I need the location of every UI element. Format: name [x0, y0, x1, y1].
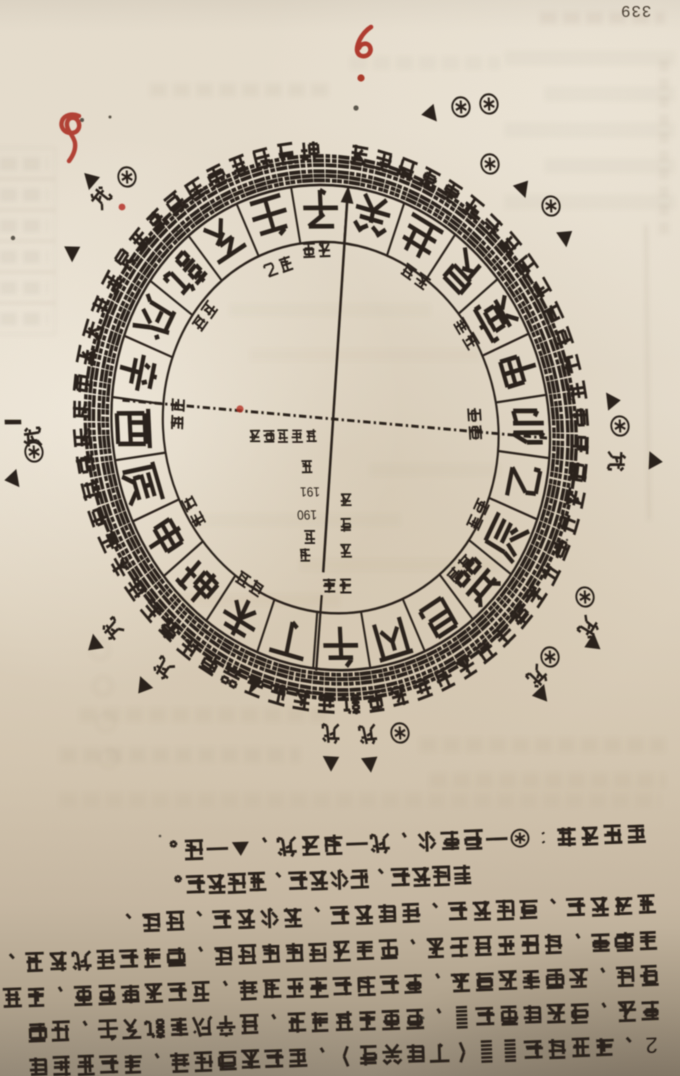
svg-text:191: 191	[300, 484, 321, 499]
svg-text:339: 339	[620, 2, 651, 19]
svg-text:2: 2	[645, 1032, 658, 1057]
svg-text:190: 190	[297, 507, 318, 522]
